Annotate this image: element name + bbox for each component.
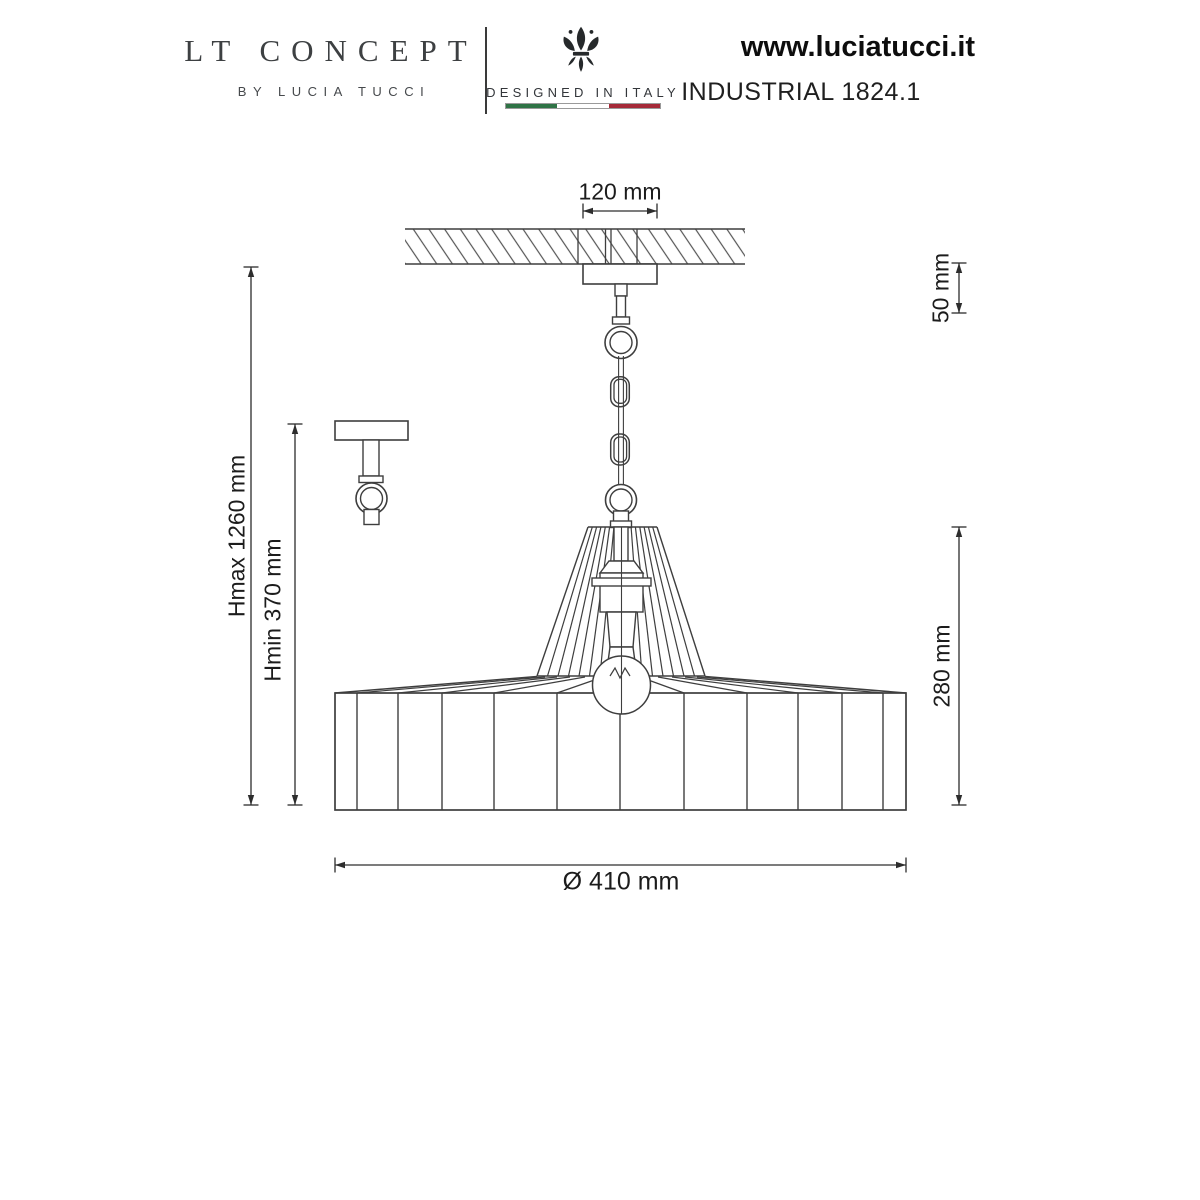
dim-line-hmin (288, 424, 303, 805)
dim-label-hmax: Hmax 1260 mm (224, 455, 251, 617)
dim-line-canopy-width (583, 204, 657, 219)
suspension-chain (605, 327, 637, 528)
dim-label-shade-height: 280 mm (929, 624, 956, 707)
ceiling-hatch (405, 229, 745, 264)
dim-label-suspension-top: 50 mm (928, 253, 955, 323)
dim-label-canopy-width: 120 mm (578, 179, 661, 206)
ceiling-canopy (583, 264, 657, 324)
dimension-lines (244, 204, 967, 873)
mount-detail-view (335, 421, 408, 525)
light-bulb (593, 527, 651, 714)
dim-label-hmin: Hmin 370 mm (260, 538, 287, 681)
dim-label-diameter: Ø 410 mm (563, 868, 680, 897)
